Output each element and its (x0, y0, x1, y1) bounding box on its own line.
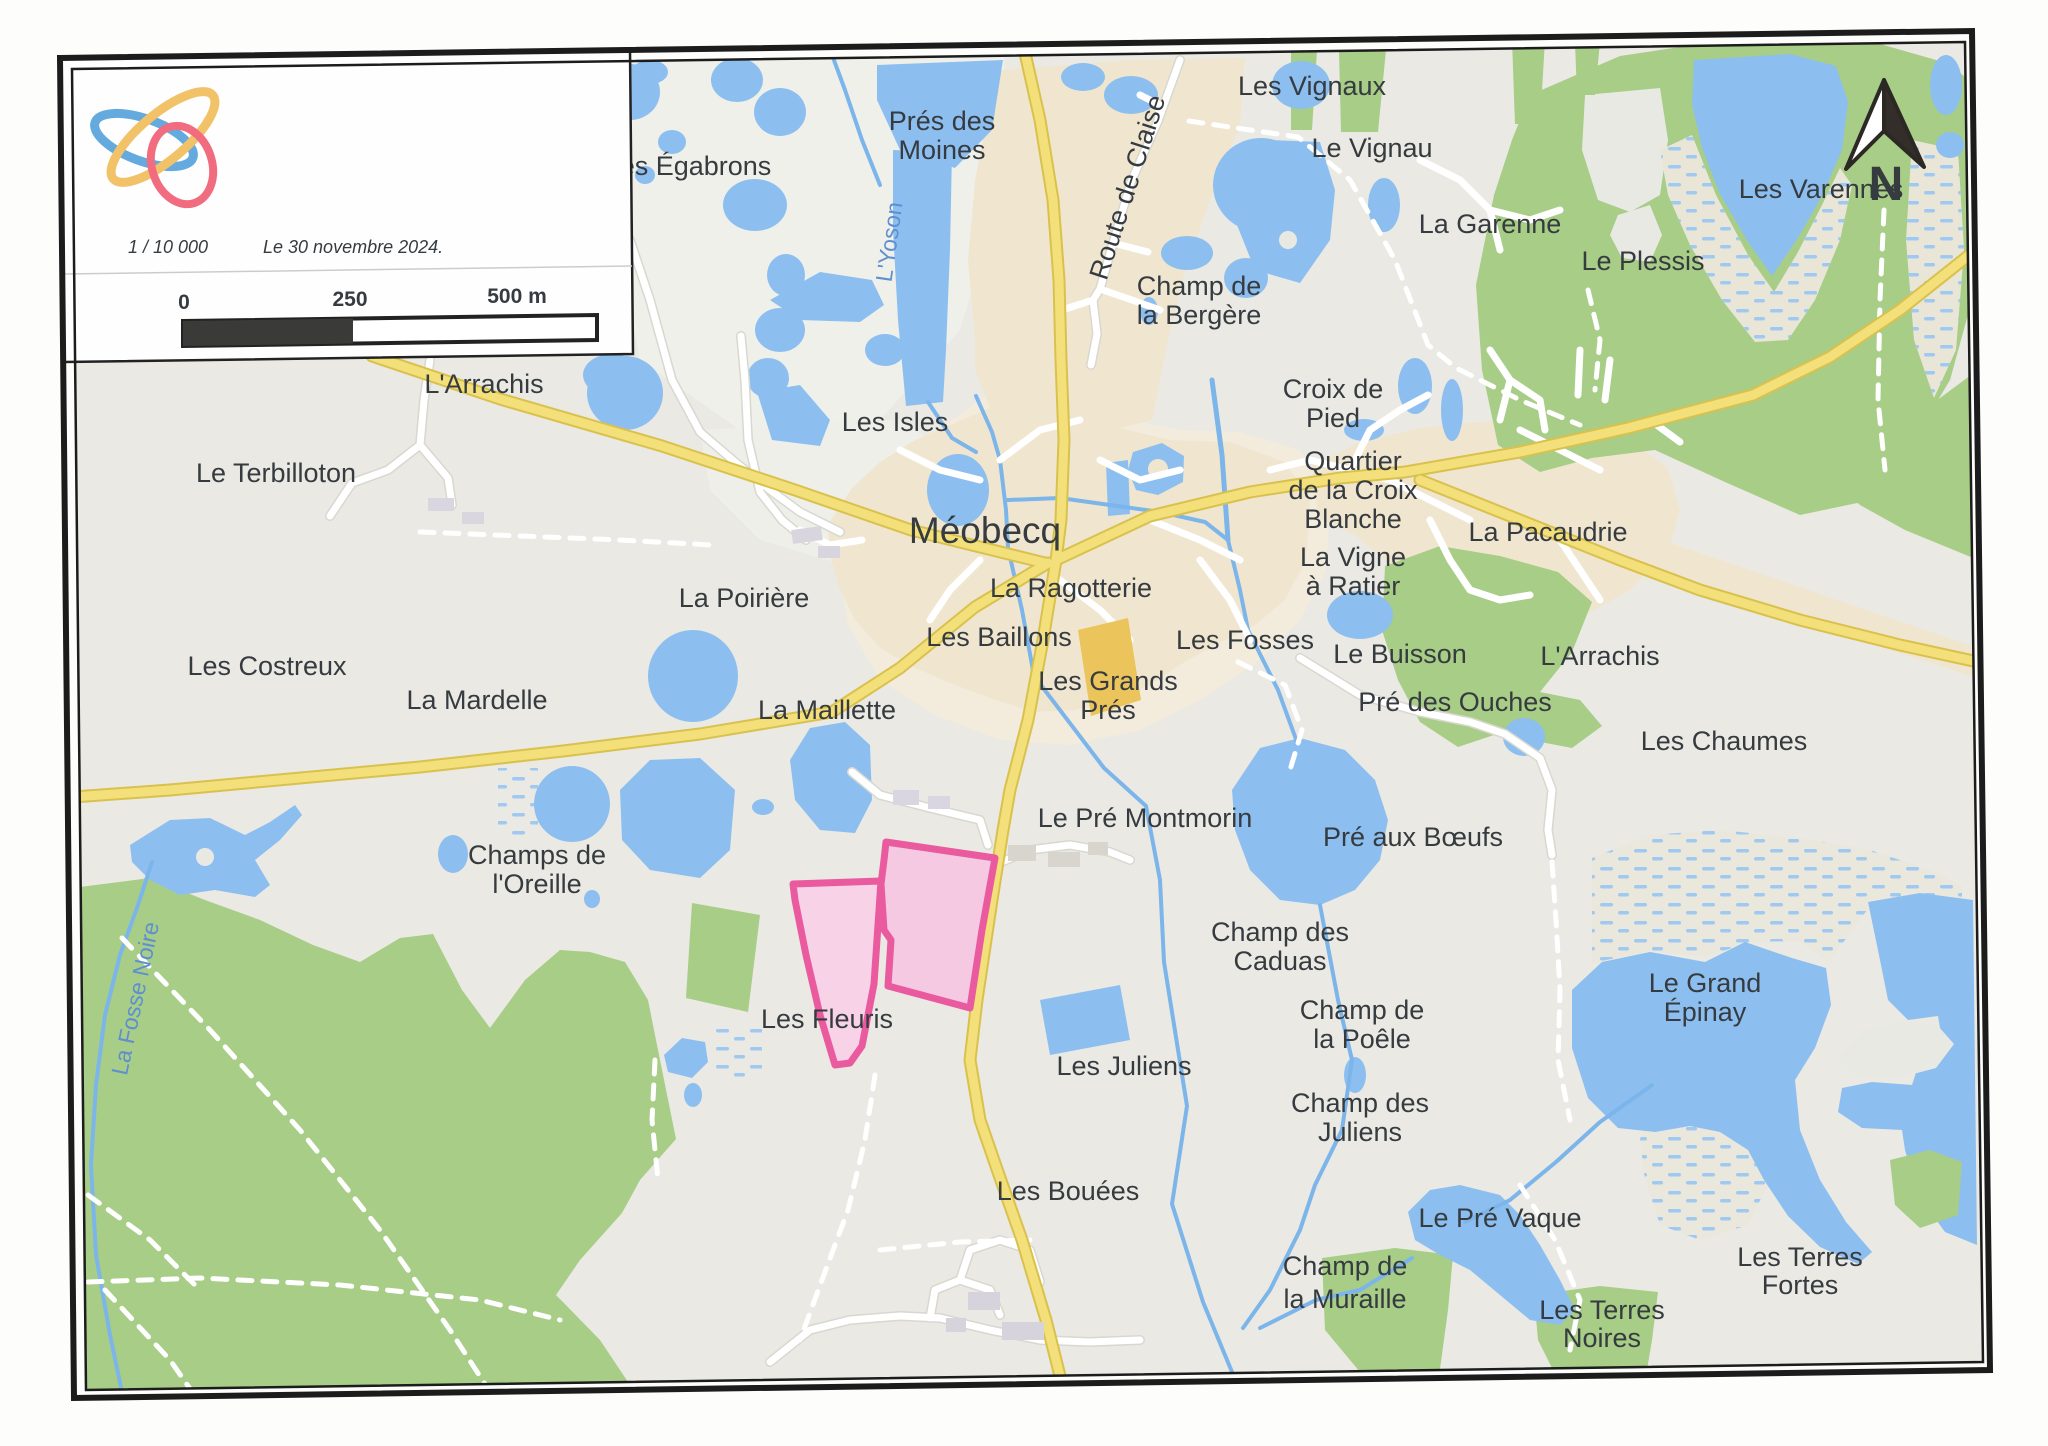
svg-text:Les Baillons: Les Baillons (926, 622, 1072, 652)
svg-text:L'Arrachis: L'Arrachis (424, 369, 543, 399)
svg-text:Les Costreux: Les Costreux (187, 651, 347, 681)
svg-text:500 m: 500 m (487, 285, 547, 308)
svg-text:Méobecq: Méobecq (909, 510, 1061, 551)
svg-text:l'Oreille: l'Oreille (492, 869, 581, 899)
svg-text:Le Pré Montmorin: Le Pré Montmorin (1038, 803, 1253, 833)
svg-text:Les Terres: Les Terres (1539, 1295, 1665, 1325)
svg-text:Champ de: Champ de (1300, 995, 1425, 1025)
svg-text:Blanche: Blanche (1304, 504, 1402, 534)
svg-text:0: 0 (178, 291, 190, 314)
svg-text:de la Croix: de la Croix (1288, 475, 1418, 505)
svg-text:La Ragotterie: La Ragotterie (990, 573, 1152, 603)
svg-text:Champs de: Champs de (468, 840, 606, 870)
svg-text:Caduas: Caduas (1233, 946, 1326, 976)
svg-text:Prés des: Prés des (889, 106, 996, 136)
svg-text:La Maillette: La Maillette (758, 695, 896, 725)
svg-text:Les Terres: Les Terres (1737, 1242, 1863, 1272)
svg-text:Épinay: Épinay (1664, 997, 1747, 1027)
svg-text:La Poirière: La Poirière (679, 583, 810, 613)
svg-text:L'Arrachis: L'Arrachis (1540, 641, 1659, 671)
svg-text:Les Vignaux: Les Vignaux (1238, 71, 1387, 101)
svg-text:Moines: Moines (898, 135, 985, 165)
svg-text:1 / 10 000: 1 / 10 000 (128, 237, 208, 257)
svg-text:La Pacaudrie: La Pacaudrie (1468, 517, 1627, 547)
svg-text:Les Fosses: Les Fosses (1176, 625, 1314, 655)
svg-text:Noires: Noires (1563, 1323, 1641, 1353)
svg-text:Les Juliens: Les Juliens (1056, 1051, 1191, 1081)
svg-text:N: N (1869, 158, 1904, 211)
svg-text:Prés: Prés (1080, 695, 1136, 725)
svg-text:Le 30 novembre 2024.: Le 30 novembre 2024. (263, 237, 443, 257)
svg-text:Le Grand: Le Grand (1649, 968, 1762, 998)
svg-text:Les Grands: Les Grands (1038, 666, 1178, 696)
svg-text:Les Bouées: Les Bouées (997, 1176, 1140, 1206)
svg-text:la Muraille: la Muraille (1283, 1284, 1406, 1314)
svg-text:250: 250 (332, 288, 367, 311)
svg-text:Les Chaumes: Les Chaumes (1641, 726, 1808, 756)
svg-text:La Mardelle: La Mardelle (406, 685, 547, 715)
svg-text:Fortes: Fortes (1762, 1270, 1839, 1300)
svg-text:à Ratier: à Ratier (1306, 571, 1401, 601)
svg-text:Le Vignau: Le Vignau (1311, 133, 1432, 163)
svg-text:Croix de: Croix de (1283, 374, 1384, 404)
svg-text:Le Terbilloton: Le Terbilloton (196, 458, 356, 488)
svg-text:Quartier: Quartier (1304, 446, 1402, 476)
svg-text:Le Plessis: Le Plessis (1581, 246, 1704, 276)
svg-text:Champ de: Champ de (1137, 271, 1262, 301)
svg-text:Champ des: Champ des (1211, 917, 1349, 947)
svg-text:la Poêle: la Poêle (1313, 1024, 1411, 1054)
svg-text:Les Fleuris: Les Fleuris (761, 1004, 893, 1034)
svg-text:La Vigne: La Vigne (1300, 542, 1406, 572)
svg-text:Champ de: Champ de (1283, 1251, 1408, 1281)
svg-text:Pré aux Bœufs: Pré aux Bœufs (1323, 822, 1503, 852)
svg-text:la Bergère: la Bergère (1137, 300, 1262, 330)
svg-text:Le Buisson: Le Buisson (1333, 639, 1467, 669)
svg-text:Juliens: Juliens (1318, 1117, 1402, 1147)
svg-text:Les Isles: Les Isles (842, 407, 949, 437)
svg-text:Pré des Ouches: Pré des Ouches (1358, 687, 1552, 717)
svg-text:Champ des: Champ des (1291, 1088, 1429, 1118)
svg-text:La Garenne: La Garenne (1419, 209, 1562, 239)
svg-text:Pied: Pied (1306, 403, 1360, 433)
svg-text:Le Pré Vaque: Le Pré Vaque (1418, 1203, 1581, 1233)
